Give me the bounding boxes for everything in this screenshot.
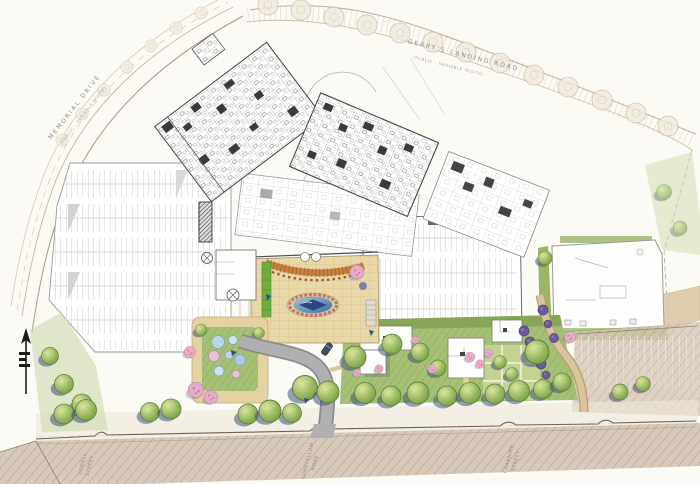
faint-tree-icon: [145, 40, 157, 52]
site-plan-canvas: MEMORIAL DRIVE (PUBLIC - VARIABLE WIDTH)…: [0, 0, 700, 484]
faint-tree-icon: [390, 23, 410, 43]
entry-canopy: [312, 253, 321, 262]
faint-tree-icon: [524, 65, 544, 85]
site-plan-drawing: MEMORIAL DRIVE (PUBLIC - VARIABLE WIDTH)…: [0, 0, 700, 484]
faint-tree-icon: [324, 7, 344, 27]
faint-tree-icon: [357, 15, 377, 35]
purple-planting-icon: [550, 334, 559, 343]
entry-canopy: [301, 253, 310, 262]
faint-tree-icon: [658, 116, 678, 136]
service-bar: [199, 202, 212, 242]
plaza-stairs: [366, 300, 376, 326]
purple-planting-icon: [544, 320, 552, 328]
reflecting-pool: [287, 293, 339, 317]
faint-tree-icon: [558, 77, 578, 97]
blue-planting: [359, 282, 367, 290]
purple-planting-icon: [538, 305, 548, 315]
faint-tree-icon: [121, 61, 133, 73]
faint-tree-icon: [170, 22, 182, 34]
faint-tree-icon: [195, 7, 207, 19]
faint-tree-icon: [626, 103, 646, 123]
faint-tree-icon: [592, 90, 612, 110]
faint-tree-icon: [291, 0, 311, 20]
